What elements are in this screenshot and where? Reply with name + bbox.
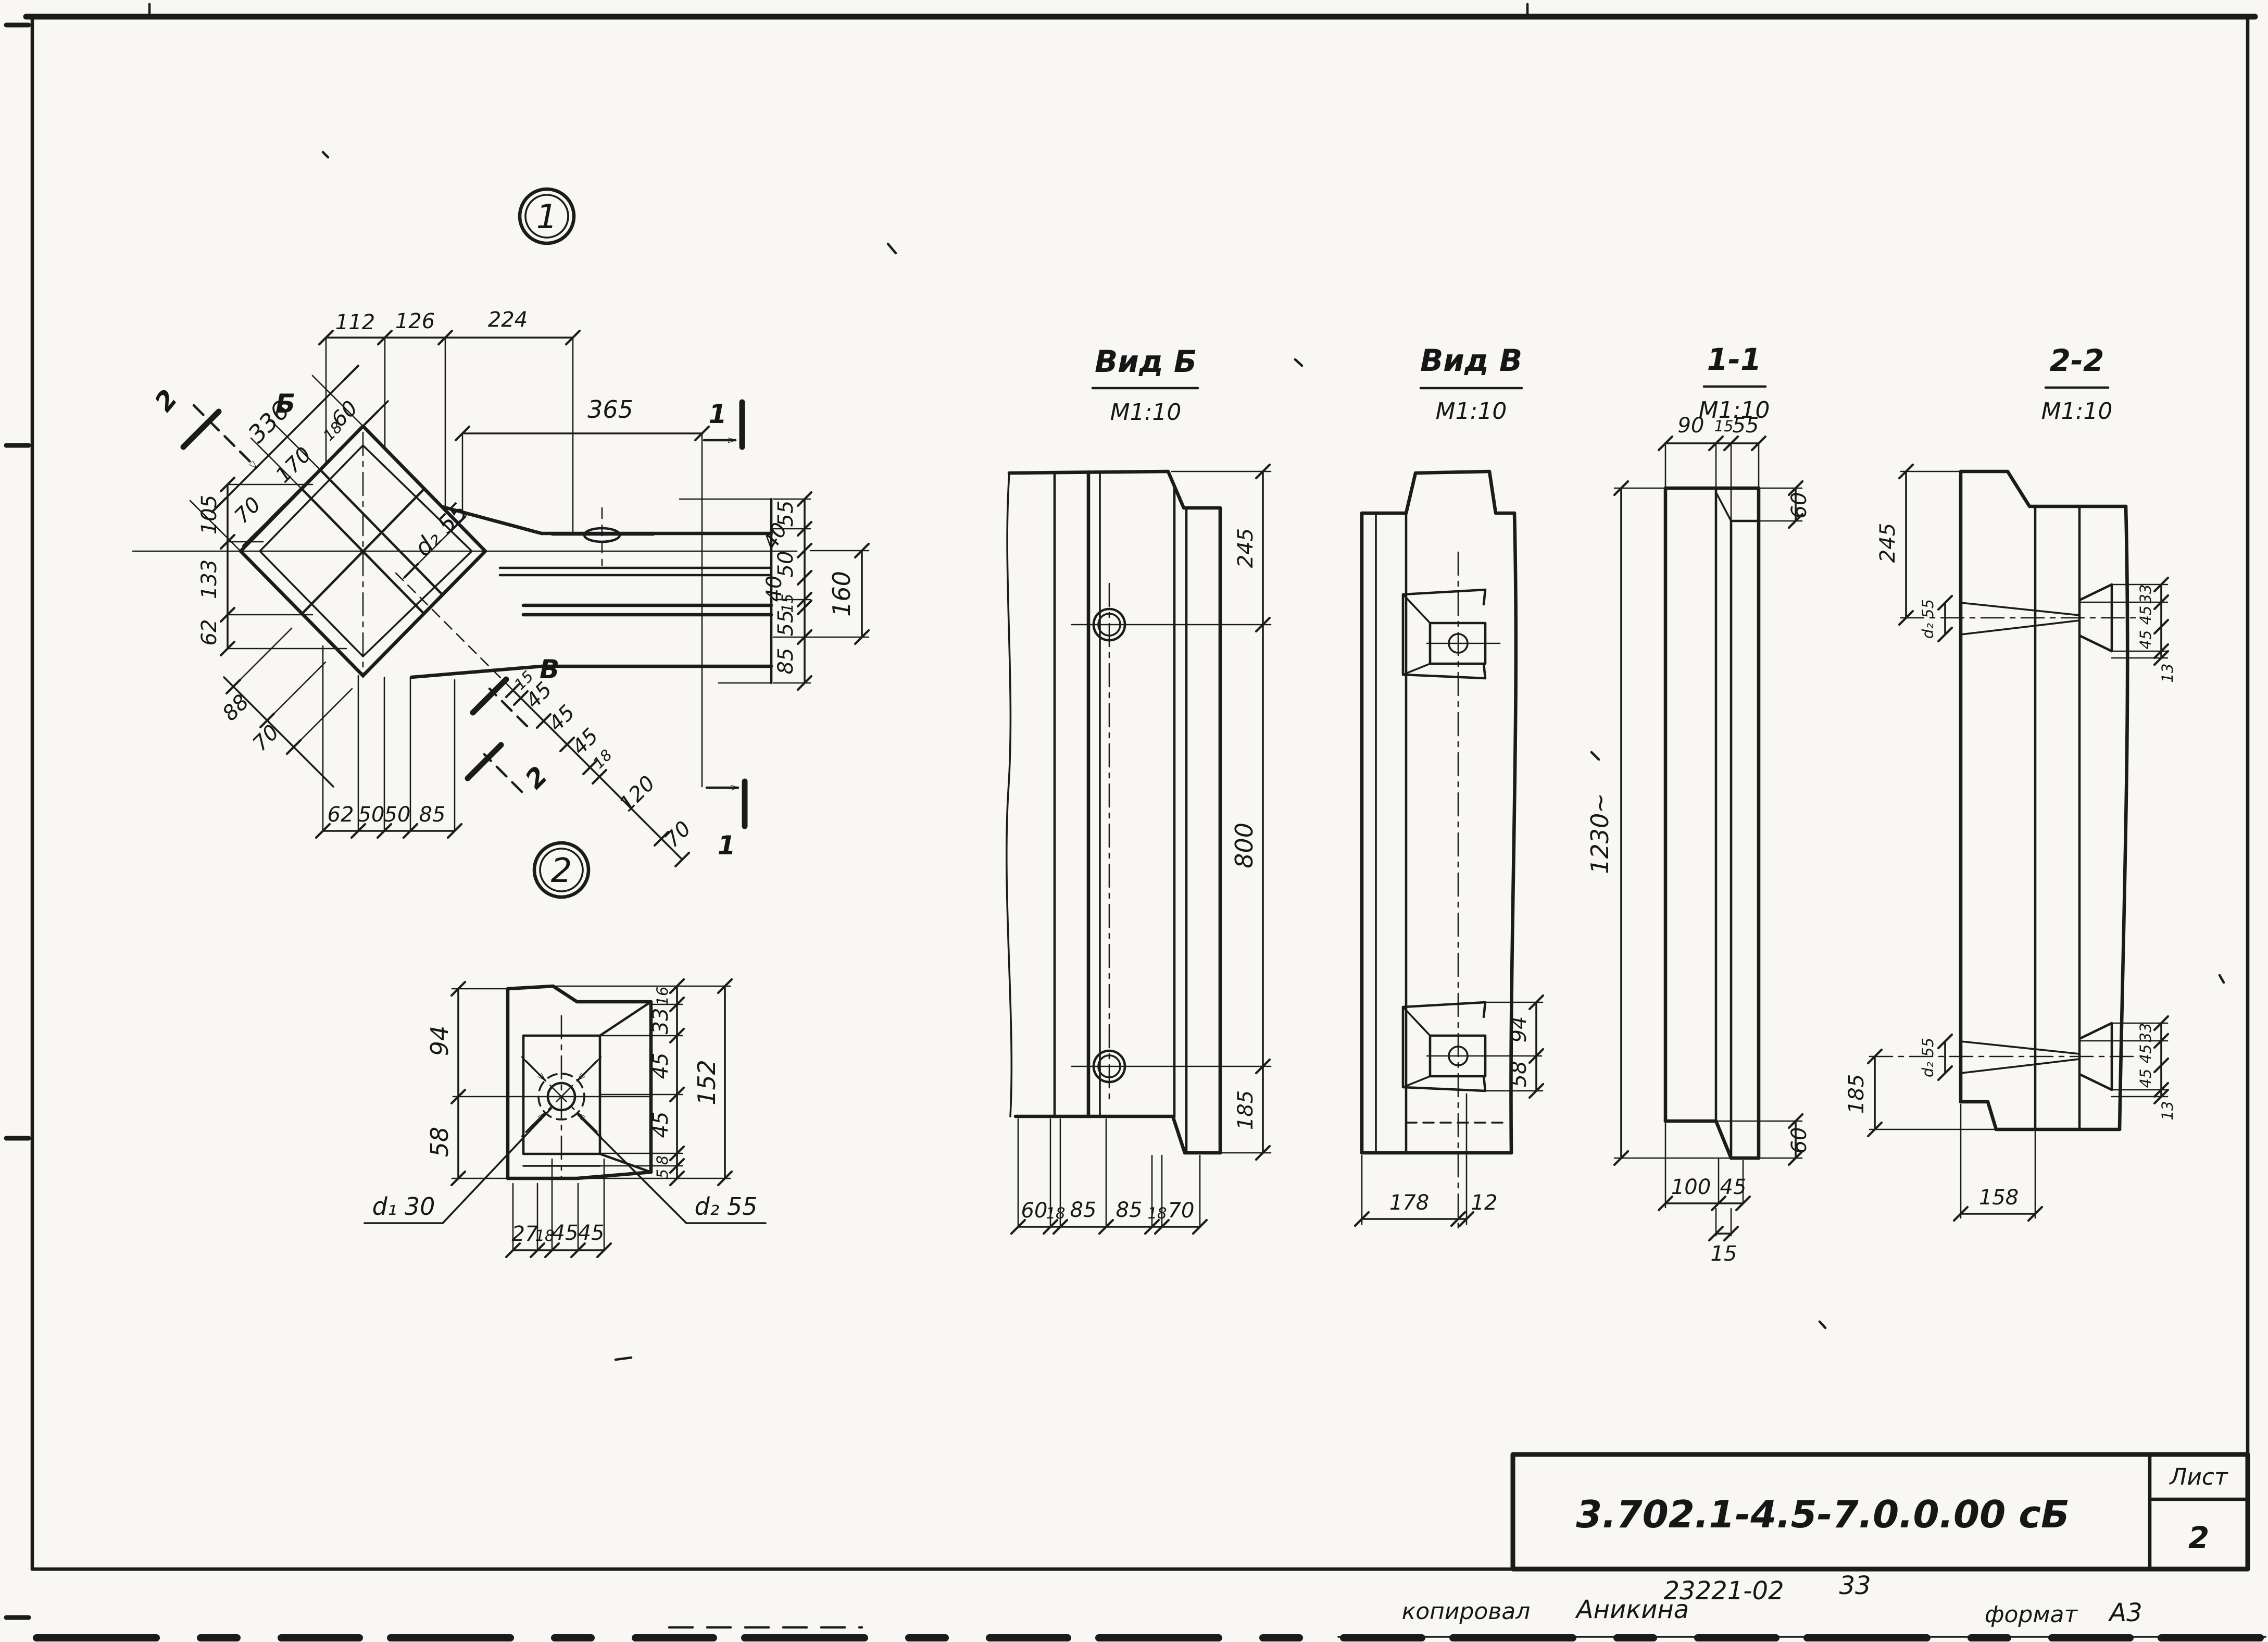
section-2-2-t1-13: 13 <box>2159 664 2176 683</box>
section-2-2-dim-158: 158 <box>1979 1186 2019 1210</box>
plan-dim-85: 85 <box>419 803 446 827</box>
view-v-scale: М1:10 <box>1436 398 1507 425</box>
view-b-dim-245: 245 <box>1234 528 1258 568</box>
view-b-dim-18b: 18 <box>1148 1204 1167 1222</box>
detail-dim-45d: 45 <box>578 1221 605 1245</box>
detail-dim-33: 33 <box>649 1008 673 1035</box>
title-block: 3.702.1-4.5-7.0.0.00 сБ Лист 2 23221-02 … <box>1338 1454 2265 1637</box>
plan-slot-oval <box>552 508 654 565</box>
section-2-2-t1-45b: 45 <box>2137 630 2154 650</box>
section-2-2-t2-13: 13 <box>2159 1101 2176 1121</box>
plan-dim-50a: 50 <box>358 803 385 827</box>
plan-lower-88: 88 <box>218 690 254 726</box>
view-b-scale: М1:10 <box>1110 399 1182 426</box>
view-v-dim-94: 94 <box>1507 1016 1531 1043</box>
plan-right-160: 160 <box>828 571 856 617</box>
section-2-2-d2-bottom: d₂ 55 <box>1919 1038 1937 1077</box>
plan-dim-133: 133 <box>197 559 221 599</box>
detail-dim-152: 152 <box>693 1060 721 1105</box>
plan-mid-70: 70 <box>660 817 696 853</box>
section-1-1-dim-60b: 60 <box>1787 1127 1811 1154</box>
section-2-2-scale: М1:10 <box>2041 398 2113 425</box>
copied-by-name: Аникина <box>1575 1595 1689 1624</box>
detail-dim-45a: 45 <box>649 1053 673 1079</box>
plan-dim-365: 365 <box>587 395 633 424</box>
detail-marker-circle-2: 2 <box>534 843 588 897</box>
view-b-arrow-label: Б <box>275 389 295 419</box>
view-b-dim-85b: 85 <box>1116 1198 1143 1222</box>
section-2-2-t2-45b: 45 <box>2137 1069 2154 1088</box>
plan-dim-126: 126 <box>395 309 435 333</box>
section-2-2-title: 2-2 <box>2050 343 2104 378</box>
sheet-label: Лист <box>2169 1464 2228 1490</box>
plan-view: 112 126 224 365 105 133 62 62 50 50 85 5… <box>133 308 869 866</box>
section-1-1-dim-15b: 15 <box>1711 1242 1737 1266</box>
plan-dim-112: 112 <box>335 310 375 334</box>
view-v-dim-58: 58 <box>1507 1061 1531 1088</box>
sheet-number: 2 <box>2188 1520 2209 1556</box>
section-2-mark-top: 2 <box>149 384 184 417</box>
format-value: А3 <box>2108 1598 2142 1627</box>
detail-marker-2-label: 2 <box>551 852 572 890</box>
detail-d1-label: d₁ 30 <box>372 1192 435 1221</box>
detail-dim-58: 58 <box>425 1127 454 1158</box>
detail-dim-lines <box>452 986 730 1250</box>
detail-marker-1-label: 1 <box>536 198 558 237</box>
drawing-sheet: 1 2 <box>0 0 2268 1642</box>
section-1-1-dim-60t: 60 <box>1787 492 1811 519</box>
plan-right-50: 50 <box>774 551 798 578</box>
plan-mid-120: 120 <box>615 772 660 817</box>
section-2-2-tenon-bottom <box>1870 1023 2135 1090</box>
section-1-1-outline <box>1665 488 1759 1158</box>
view-v: Вид В М1:10 94 5 <box>1355 343 1543 1229</box>
section-2-2-outline <box>1961 471 2127 1129</box>
view-b-dim-18a: 18 <box>1046 1204 1066 1222</box>
plan-dim-62: 62 <box>328 803 354 827</box>
doc-number: 3.702.1-4.5-7.0.0.00 сБ <box>1576 1492 2070 1536</box>
section-1-1-dim-55: 55 <box>1733 414 1759 438</box>
section-1-1-dim-15t: 15 <box>1714 417 1734 435</box>
plan-dim-224: 224 <box>488 308 528 332</box>
view-v-pocket-top <box>1403 590 1500 678</box>
plan-right-55b: 55 <box>774 610 798 637</box>
detail-marker-circle-1: 1 <box>520 189 574 243</box>
detail-dim-8: 8 <box>654 1155 671 1165</box>
section-2-2-dim-185: 185 <box>1845 1074 1869 1114</box>
plan-dim-105: 105 <box>197 495 221 534</box>
copied-by-label: копировал <box>1402 1598 1531 1625</box>
section-1-mark-top: 1 <box>709 399 727 429</box>
view-b-dim-60: 60 <box>1021 1199 1048 1223</box>
detail-dim-ticks <box>452 979 732 1257</box>
detail-dim-94: 94 <box>425 1026 454 1056</box>
section-2-2-t2-33: 33 <box>2137 1023 2154 1042</box>
view-v-dim-12: 12 <box>1471 1191 1498 1215</box>
section-1-1-dim-45: 45 <box>1720 1175 1747 1199</box>
section-2-2-t1-45a: 45 <box>2137 606 2154 625</box>
plan-centerlines <box>133 432 797 677</box>
stamp-page: 33 <box>1839 1571 1871 1600</box>
plan-dim-62v: 62 <box>197 619 221 646</box>
section-1-1-dim-lines <box>1614 443 1802 1236</box>
section-2-2-dim-ticks <box>1868 465 2168 1221</box>
view-b-title: Вид Б <box>1095 344 1197 379</box>
section-2-mark-bottom: 2 <box>519 761 554 795</box>
section-2-2-dim-lines <box>1870 471 2167 1218</box>
section-1-1-dim-90: 90 <box>1678 414 1705 438</box>
plan-lower-70: 70 <box>248 720 284 756</box>
section-2-2-d2-top: d₂ 55 <box>1919 599 1937 639</box>
detail-dim-16: 16 <box>654 987 671 1006</box>
view-b-dim-85a: 85 <box>1070 1198 1097 1222</box>
plan-dim-50b: 50 <box>384 803 411 827</box>
detail-dim-27: 27 <box>512 1222 538 1246</box>
section-2-2-t2-45a: 45 <box>2137 1044 2154 1064</box>
detail-dim-45c: 45 <box>552 1221 579 1245</box>
detail-dim-5: 5 <box>654 1169 671 1178</box>
view-b-dim-185: 185 <box>1234 1090 1258 1130</box>
format-label: формат <box>1985 1601 2078 1628</box>
section-1-1-title: 1-1 <box>1707 342 1762 377</box>
section-1-mark-bottom: 1 <box>718 830 736 861</box>
detail-2-view: 94 58 16 33 45 45 8 5 152 27 18 45 45 d₁… <box>365 979 766 1257</box>
plan-beam <box>411 499 771 683</box>
section-2-2: 2-2 М1:10 <box>1845 343 2176 1221</box>
view-v-title: Вид В <box>1420 343 1522 378</box>
view-v-arrow-label: В <box>540 654 559 685</box>
view-v-dim-178: 178 <box>1389 1191 1429 1215</box>
view-v-outline <box>1362 471 1516 1229</box>
section-1-1: 1-1 М1:10 <box>1586 342 1811 1266</box>
section-1-1-dim-100: 100 <box>1671 1175 1711 1199</box>
view-b: Вид Б М1:10 245 800 <box>1007 344 1271 1234</box>
plan-right-85: 85 <box>774 648 798 675</box>
view-b-dim-800: 800 <box>1230 823 1258 868</box>
plan-diag-70: 70 <box>230 493 266 529</box>
detail-d2-label: d₂ 55 <box>695 1192 758 1221</box>
view-b-dim-70: 70 <box>1168 1199 1195 1223</box>
plan-mid-45b: 45 <box>544 701 580 737</box>
section-1-1-dim-1230: 1230~ <box>1586 793 1614 874</box>
detail-dim-45b: 45 <box>649 1112 673 1138</box>
section-2-2-t1-33: 33 <box>2137 584 2154 604</box>
section-2-2-dim-245: 245 <box>1876 523 1900 563</box>
